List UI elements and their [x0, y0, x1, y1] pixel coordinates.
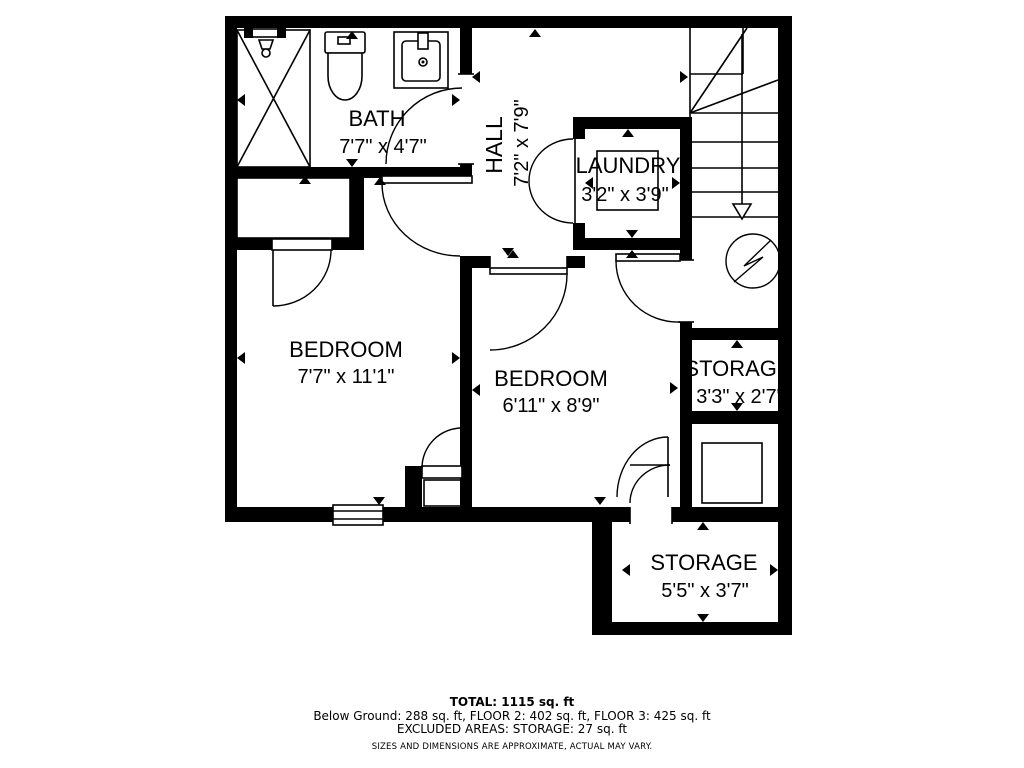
- laundry-dims: 3'2" x 3'9": [581, 184, 668, 206]
- wall-segment: [225, 238, 272, 250]
- bedroom2-label: BEDROOM: [494, 366, 608, 391]
- wall-segment: [225, 16, 237, 522]
- dimension-marker: [626, 230, 638, 238]
- dimension-marker: [697, 614, 709, 622]
- closet-shelf: [424, 480, 462, 506]
- dimension-marker: [594, 497, 606, 505]
- door-opening: [678, 260, 694, 322]
- bedroom1-label: BEDROOM: [289, 337, 403, 362]
- wall-segment: [225, 16, 792, 28]
- laundry-label: LAUNDRY: [576, 153, 681, 178]
- wall-segment: [332, 238, 364, 250]
- bedroom2-dims: 6'11" x 8'9": [502, 395, 599, 417]
- wall-segment: [680, 411, 792, 424]
- dimension-marker: [672, 177, 680, 189]
- door-arc: [630, 465, 670, 503]
- hall-label: HALL: [481, 116, 507, 174]
- bath-dims: 7'7" x 4'7": [339, 136, 426, 158]
- dimension-marker: [346, 159, 358, 167]
- dimension-markers: [237, 29, 778, 622]
- wall-segment: [460, 256, 490, 268]
- wall-segment: [680, 328, 792, 340]
- wall-segment: [567, 256, 585, 268]
- dimension-marker: [731, 340, 743, 348]
- dimension-marker: [697, 522, 709, 530]
- shower-icon: [237, 28, 310, 167]
- dimension-marker: [472, 384, 480, 396]
- closet-outline: [237, 178, 350, 238]
- window-icon: [333, 505, 383, 525]
- dimension-marker: [622, 129, 634, 137]
- dimension-marker: [529, 29, 541, 37]
- total-area-text: TOTAL: 1115 sq. ft: [0, 695, 1024, 709]
- wall-segment: [778, 16, 792, 635]
- door-opening: [571, 139, 587, 223]
- wall-segment: [592, 622, 792, 635]
- dimension-marker: [622, 564, 630, 576]
- wall-segment: [405, 466, 422, 507]
- door-leaf: [616, 254, 680, 261]
- door-arc: [529, 139, 573, 181]
- dimension-marker: [237, 352, 245, 364]
- storage2-label: STORAGE: [650, 550, 757, 575]
- floor-areas-text: Below Ground: 288 sq. ft, FLOOR 2: 402 s…: [0, 709, 1024, 723]
- hall-dims: 7'2" x 7'9": [511, 99, 533, 186]
- disclaimer-text: SIZES AND DIMENSIONS ARE APPROXIMATE, AC…: [0, 742, 1024, 752]
- door-arc: [382, 183, 460, 256]
- wall-segment: [680, 250, 692, 260]
- door-arc: [490, 274, 567, 350]
- door-arc: [616, 261, 680, 322]
- door-arc: [529, 181, 573, 223]
- dimension-marker: [452, 352, 460, 364]
- excluded-areas-text: EXCLUDED AREAS: STORAGE: 27 sq. ft: [0, 722, 1024, 736]
- floor-plan-svg: BATH 7'7" x 4'7" HALL 7'2" x 7'9" LAUNDR…: [0, 0, 1024, 768]
- dimension-marker: [680, 71, 688, 83]
- bath-label: BATH: [348, 106, 405, 131]
- door-opening: [630, 505, 672, 524]
- wall-segment: [573, 117, 585, 139]
- bedroom1-dims: 7'7" x 11'1": [297, 366, 394, 388]
- storage1-label: STORAGE: [684, 356, 791, 381]
- storage2-dims: 5'5" x 3'7": [661, 580, 748, 602]
- dimension-marker: [770, 564, 778, 576]
- door-leaf: [490, 268, 567, 274]
- storage1-dims: 3'3" x 2'7": [696, 386, 783, 408]
- wall-segment: [680, 117, 692, 250]
- door-leaf: [382, 176, 472, 183]
- door-arc: [273, 250, 331, 306]
- dimension-marker: [373, 497, 385, 505]
- wall-segment: [460, 28, 472, 74]
- utility-box-icon: [702, 443, 762, 503]
- door-opening: [422, 466, 462, 478]
- wall-segment: [573, 238, 692, 250]
- door-arc: [617, 437, 668, 497]
- floor-plan-page: BATH 7'7" x 4'7" HALL 7'2" x 7'9" LAUNDR…: [0, 0, 1024, 768]
- wall-segment: [225, 507, 792, 522]
- sink-icon: [394, 32, 448, 88]
- stairs-icon: [690, 28, 778, 219]
- wall-segment: [573, 117, 692, 129]
- dimension-marker: [670, 382, 678, 394]
- wall-segment: [592, 507, 612, 635]
- toilet-icon: [325, 32, 365, 100]
- door-arc: [422, 428, 462, 468]
- door-opening: [458, 182, 474, 256]
- door-opening: [272, 239, 332, 250]
- electrical-panel-icon: [726, 234, 780, 288]
